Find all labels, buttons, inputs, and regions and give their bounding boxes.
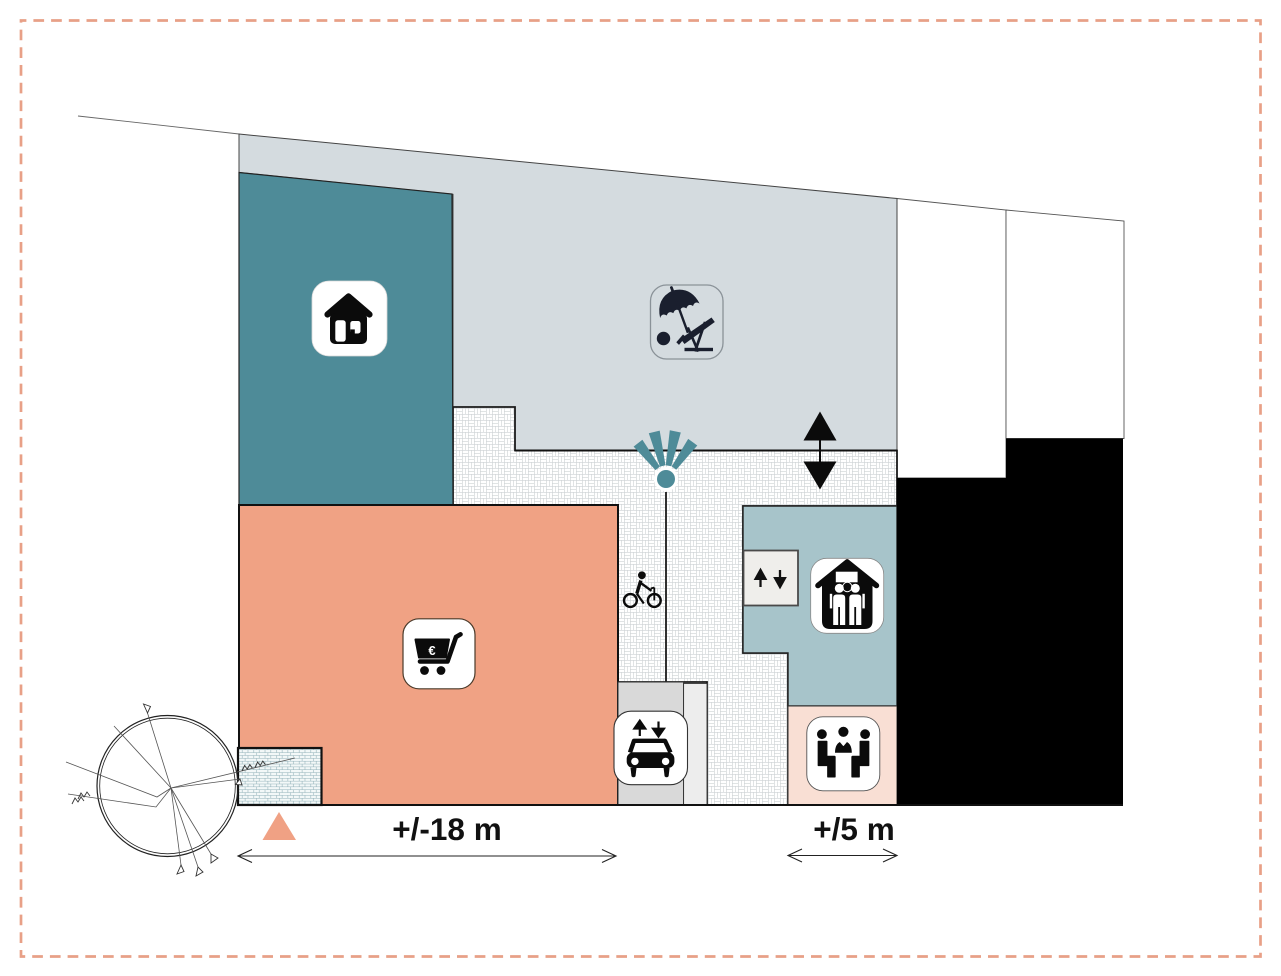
svg-text:€: € bbox=[428, 643, 435, 658]
svg-text:+/-18 m: +/-18 m bbox=[392, 811, 501, 847]
svg-text:+/5 m: +/5 m bbox=[813, 811, 894, 847]
